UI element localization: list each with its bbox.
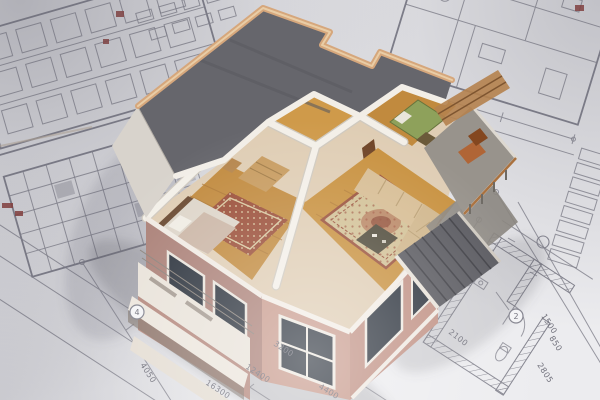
light-glow (0, 0, 600, 400)
architectural-render-image: 16300 12400 4400 3200 4050 2100 2805 150… (0, 0, 600, 400)
render-svg: 16300 12400 4400 3200 4050 2100 2805 150… (0, 0, 600, 400)
